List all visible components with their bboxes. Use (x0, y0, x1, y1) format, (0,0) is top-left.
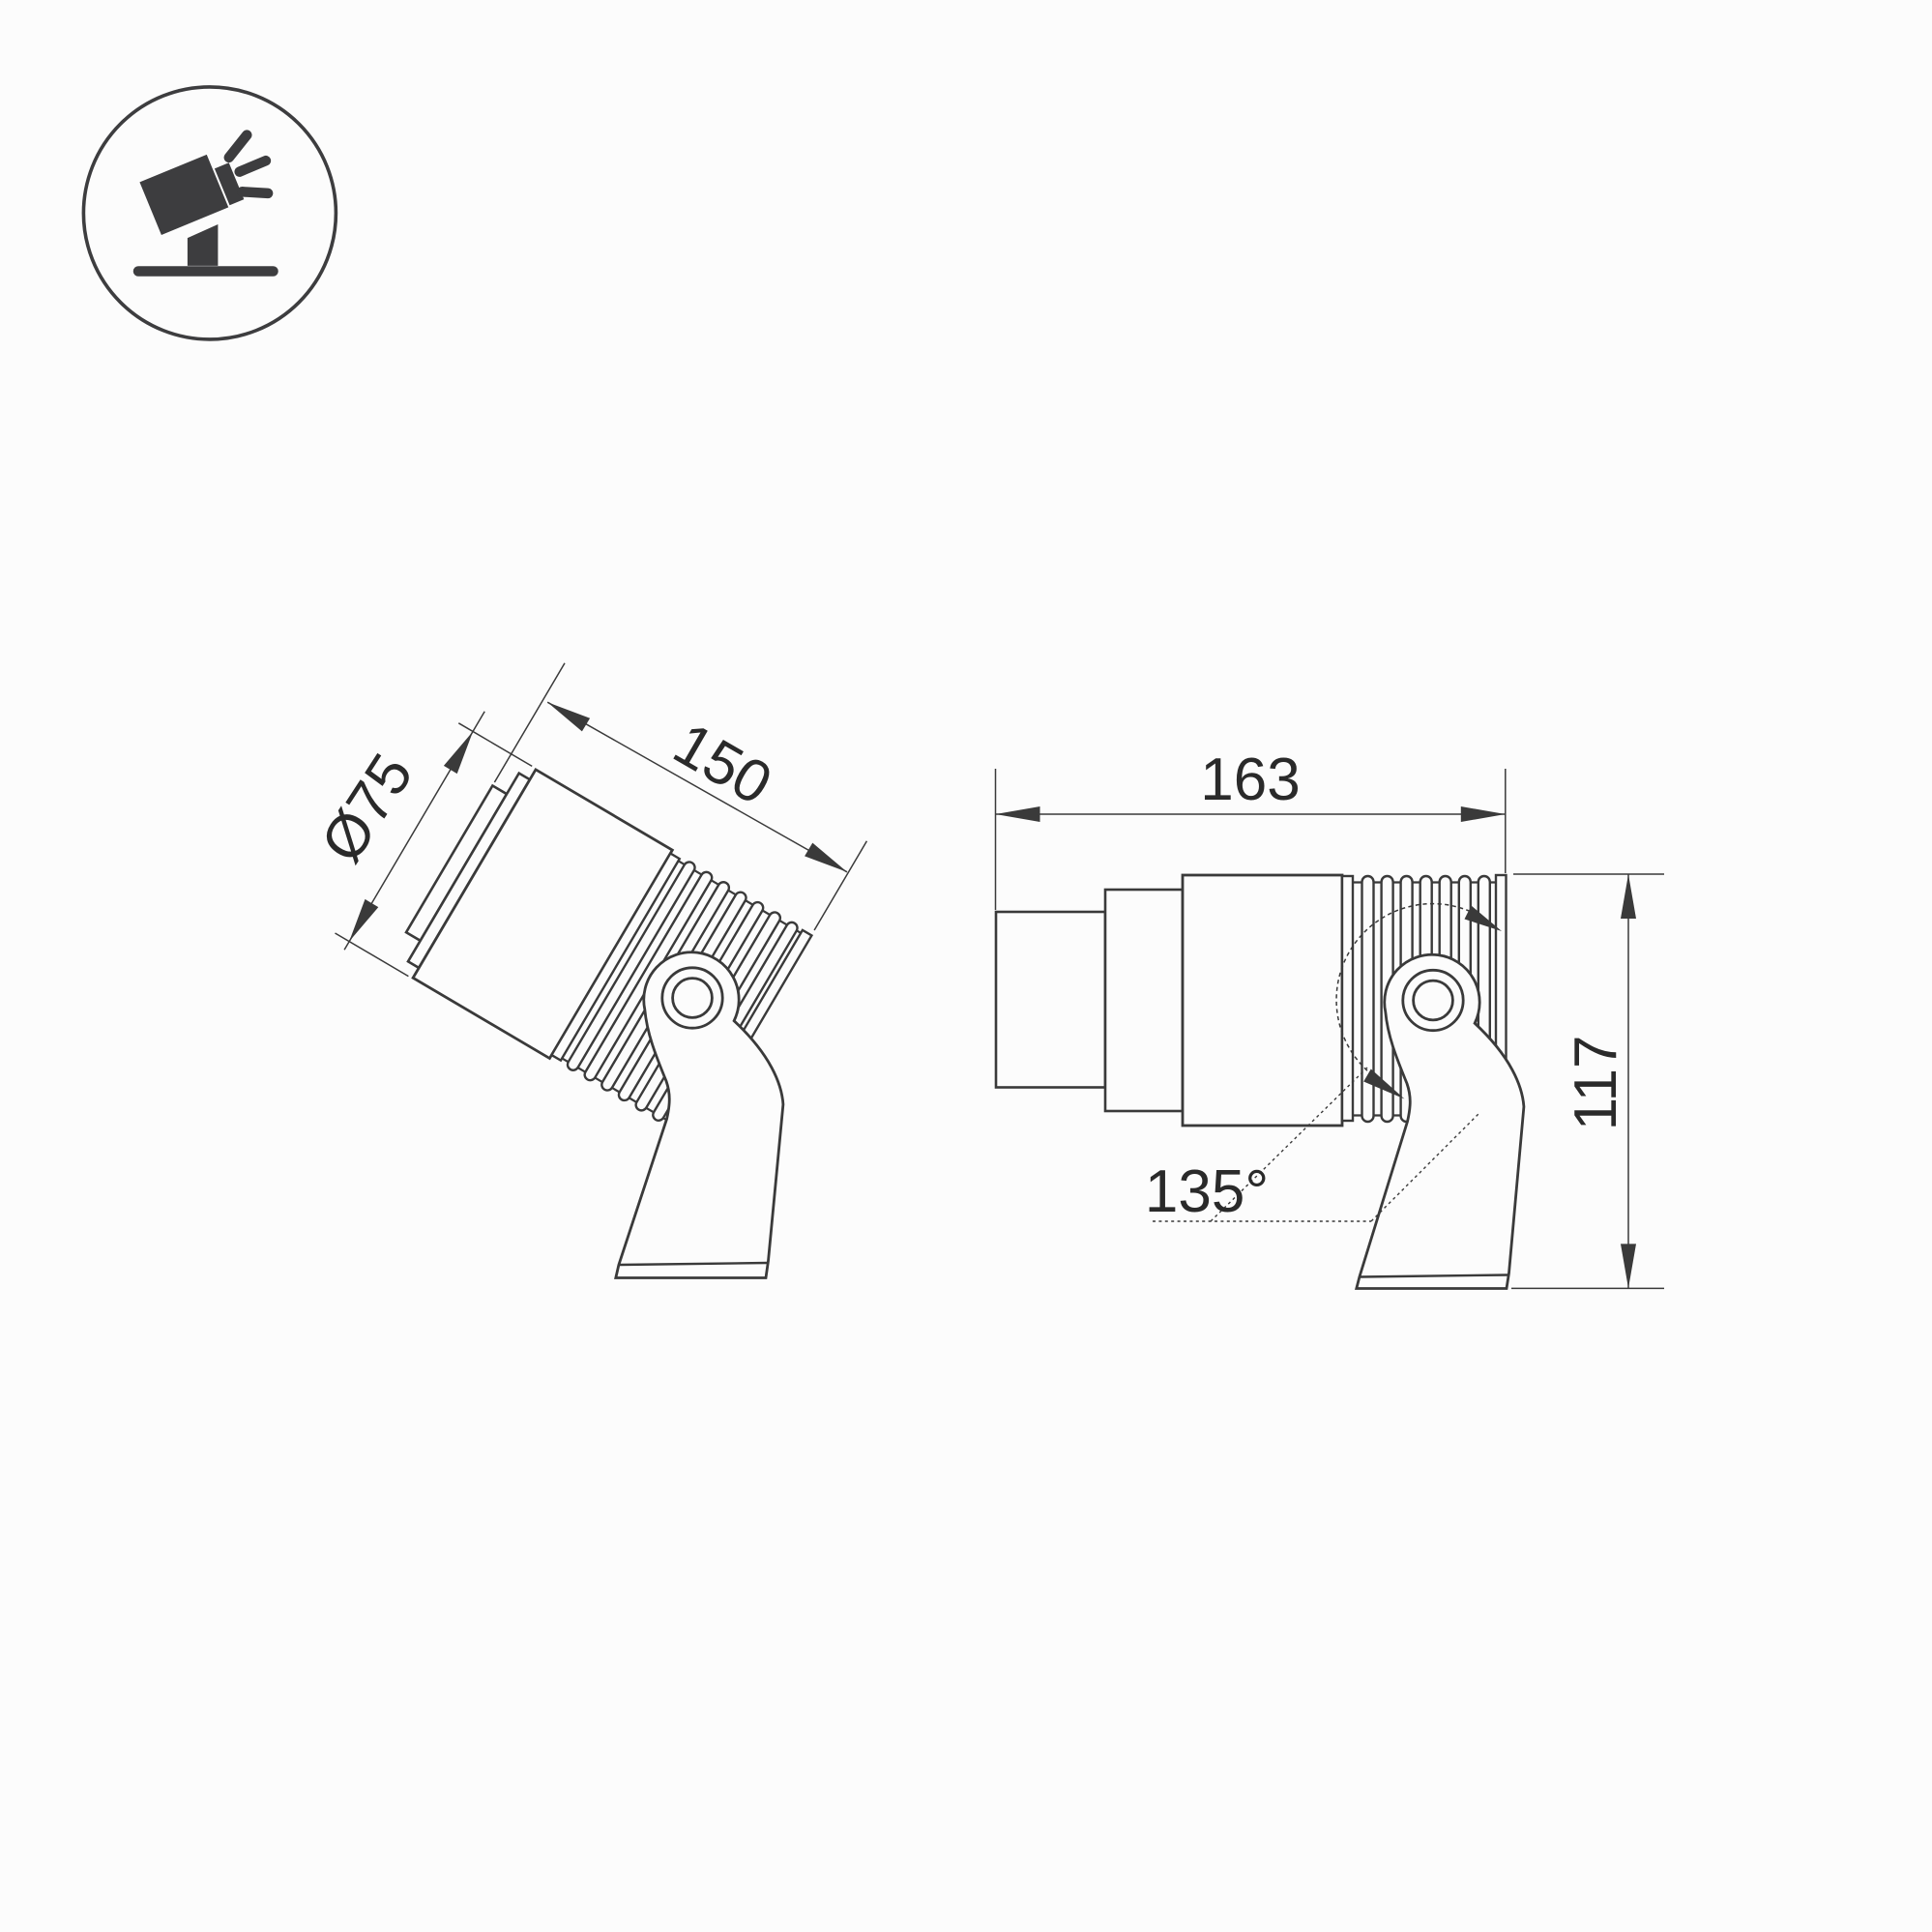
svg-text:117: 117 (1563, 1036, 1629, 1131)
svg-text:135°: 135° (1145, 1158, 1269, 1225)
svg-text:163: 163 (1200, 746, 1300, 813)
